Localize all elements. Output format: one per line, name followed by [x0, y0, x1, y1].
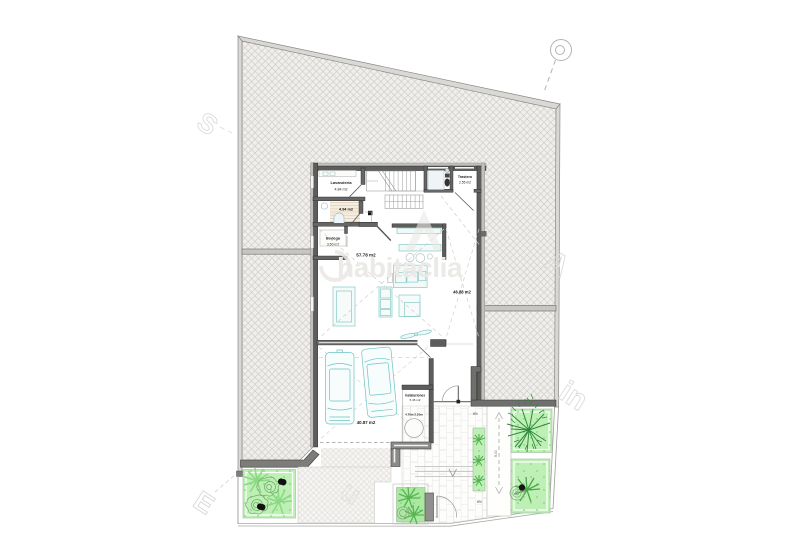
svg-text:8%: 8% [473, 412, 478, 416]
svg-text:Trastero: Trastero [458, 175, 473, 179]
svg-text:4.94 m2: 4.94 m2 [339, 208, 353, 212]
svg-text:5.46 m2: 5.46 m2 [410, 398, 421, 402]
svg-text:40.87 m2: 40.87 m2 [357, 420, 376, 425]
svg-text:4.76m 2.20m: 4.76m 2.20m [405, 413, 423, 417]
svg-text:9.00: 9.00 [494, 450, 498, 457]
svg-text:Lavandería: Lavandería [330, 180, 352, 185]
svg-text:3.50 m2: 3.50 m2 [327, 243, 339, 247]
svg-text:Instalaciones: Instalaciones [405, 394, 425, 398]
svg-text:2.55 m2: 2.55 m2 [459, 181, 471, 185]
svg-text:46.88 m2: 46.88 m2 [453, 290, 471, 295]
svg-text:8%: 8% [477, 500, 482, 504]
svg-text:4.84 m2: 4.84 m2 [335, 188, 348, 192]
svg-text:habitaclia: habitaclia [337, 252, 463, 283]
svg-text:Bodega: Bodega [326, 237, 341, 241]
